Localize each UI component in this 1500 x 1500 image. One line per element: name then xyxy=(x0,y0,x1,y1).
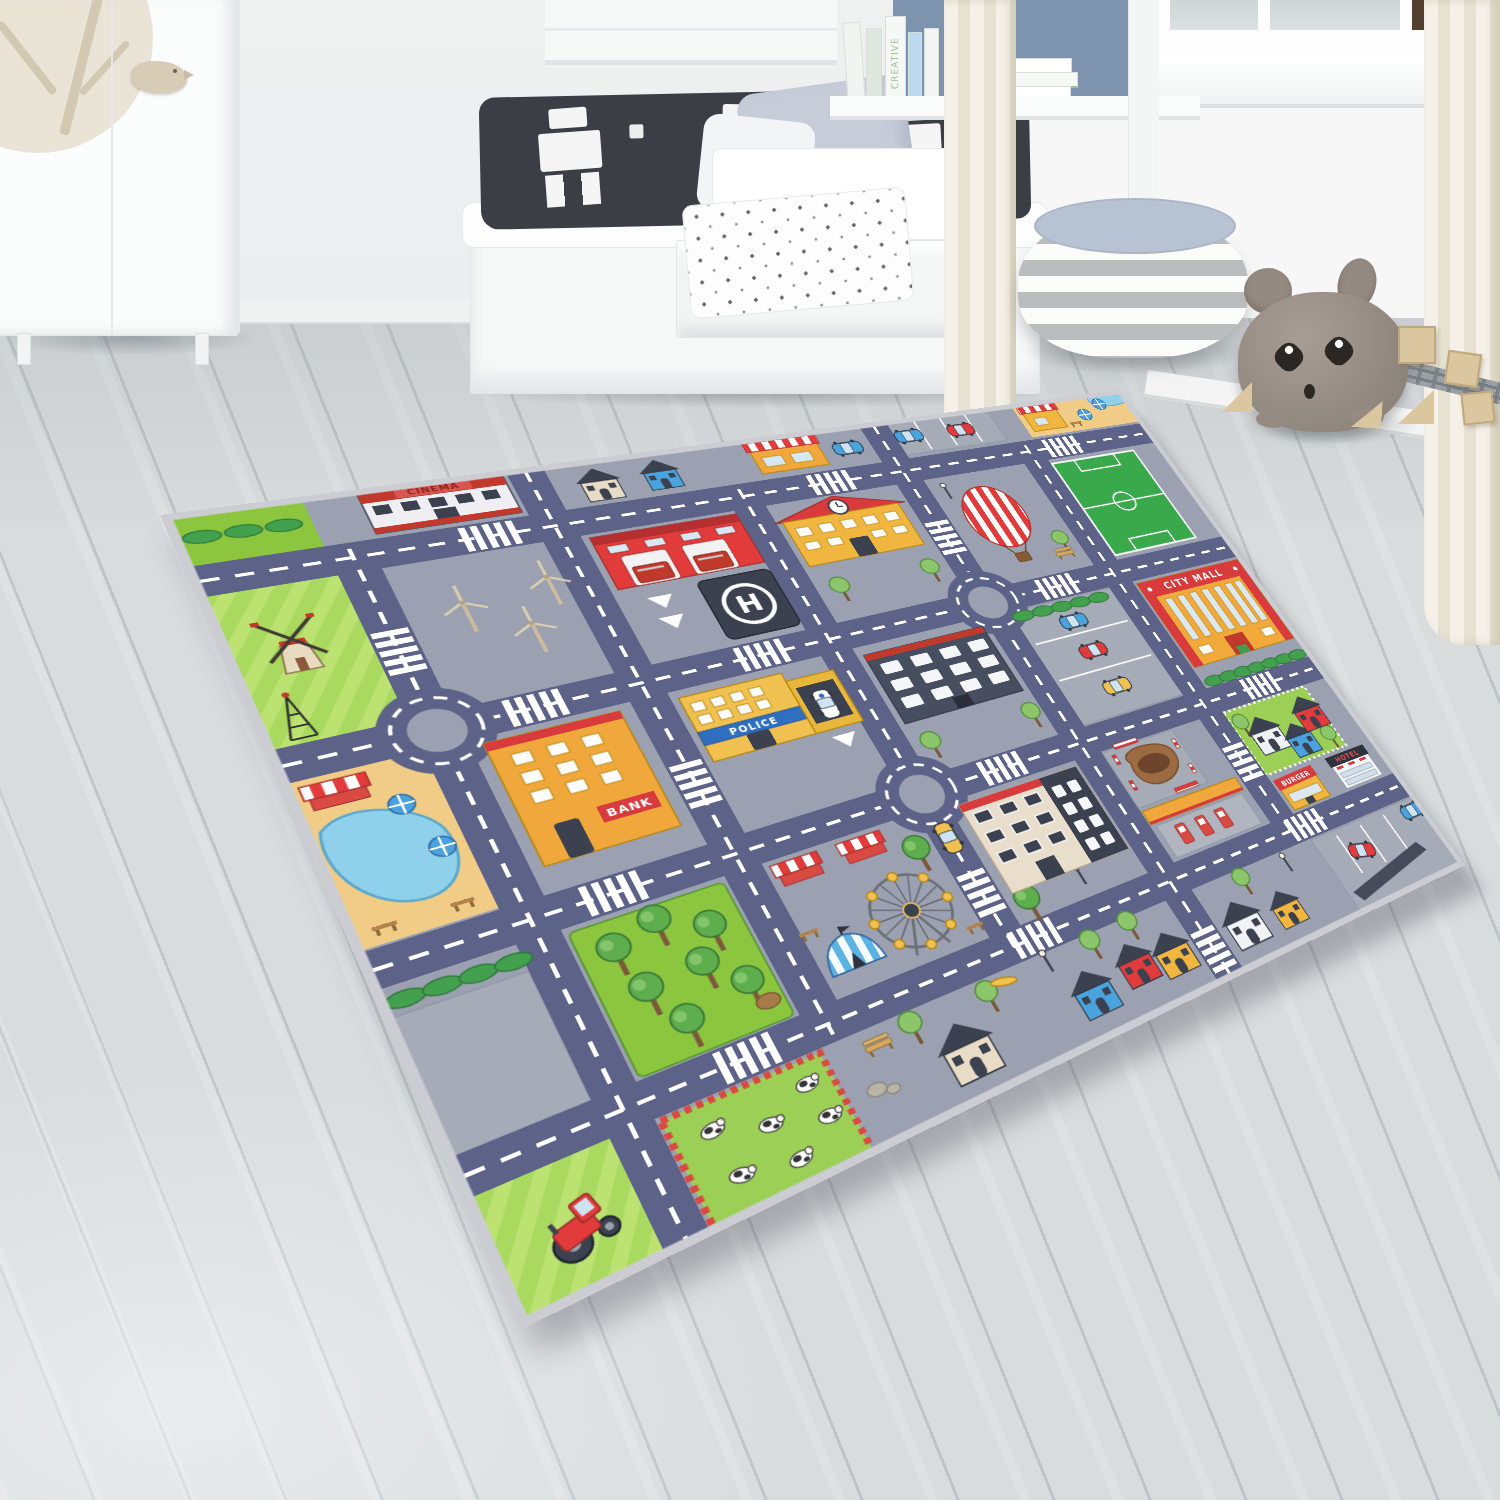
block-cube xyxy=(1460,390,1495,425)
window-glass xyxy=(1270,0,1400,34)
wardrobe-door-split xyxy=(111,0,113,335)
block-cube xyxy=(1398,326,1436,364)
skirting-board xyxy=(232,300,482,324)
window-glass xyxy=(1170,0,1258,34)
book-spine: CREATIVE xyxy=(885,16,906,100)
scene: CREATIVE xyxy=(0,0,1500,1500)
book-title: CREATIVE xyxy=(890,19,900,89)
wardrobe xyxy=(0,0,240,336)
bird-handle xyxy=(131,61,187,93)
plush-eye xyxy=(1271,339,1308,376)
pillow-print xyxy=(531,105,611,218)
plush-mouth xyxy=(1304,384,1315,399)
pouf-top xyxy=(1034,198,1236,254)
book-spine xyxy=(924,28,939,100)
small-window-sill xyxy=(545,0,837,65)
book-spine xyxy=(908,32,922,100)
block-cube xyxy=(1444,350,1482,388)
wardrobe-leg xyxy=(195,333,209,365)
plush-paw xyxy=(1256,410,1290,428)
floral-blanket xyxy=(681,186,914,319)
plush-eye xyxy=(1321,333,1358,370)
wardrobe-leg xyxy=(17,333,31,365)
book-spine xyxy=(866,28,882,100)
curtain-right xyxy=(1424,0,1500,645)
plush-mouse-toy xyxy=(1238,292,1408,432)
pillow-print xyxy=(629,124,643,138)
bed-post xyxy=(1128,0,1159,206)
